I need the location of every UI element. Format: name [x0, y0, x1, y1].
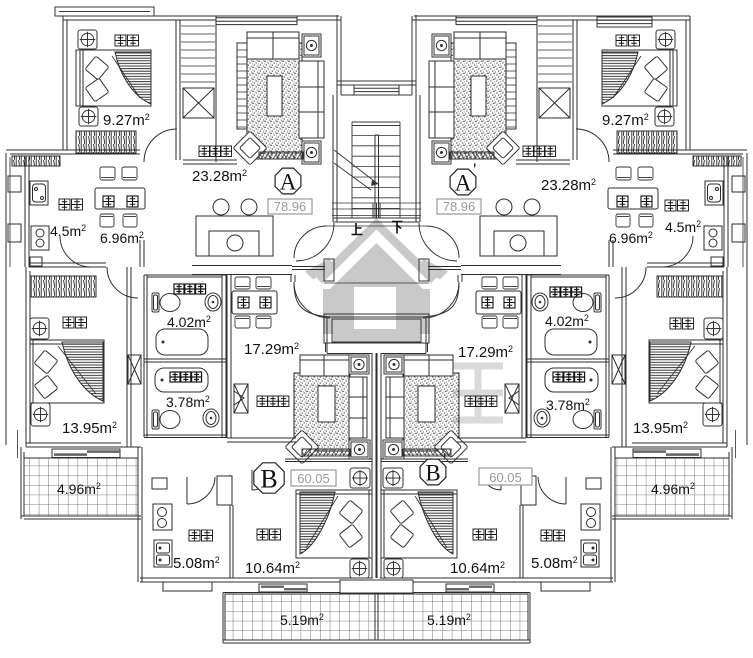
svg-text:60.05: 60.05: [297, 471, 330, 486]
svg-text:13.95m2: 13.95m2: [633, 420, 688, 437]
svg-text:5.19m2: 5.19m2: [427, 612, 471, 628]
svg-text:17.29m2: 17.29m2: [244, 341, 299, 358]
svg-text:10.64m2: 10.64m2: [450, 560, 505, 577]
svg-text:5.08m2: 5.08m2: [173, 555, 220, 572]
svg-text:3.78m2: 3.78m2: [166, 394, 210, 410]
svg-text:6.96m2: 6.96m2: [100, 230, 144, 246]
svg-text:B: B: [425, 460, 440, 485]
svg-text:B: B: [260, 464, 277, 493]
svg-text:3.78m2: 3.78m2: [546, 397, 590, 413]
svg-text:5.19m2: 5.19m2: [280, 612, 324, 628]
svg-text:4.02m2: 4.02m2: [167, 314, 211, 330]
svg-text:4.5m2: 4.5m2: [50, 223, 86, 239]
svg-text:23.28m2: 23.28m2: [541, 177, 596, 194]
svg-text:4.96m2: 4.96m2: [651, 481, 695, 497]
svg-text:10.64m2: 10.64m2: [245, 560, 300, 577]
svg-text:A: A: [455, 170, 472, 195]
svg-text:60.05: 60.05: [489, 470, 522, 485]
svg-text:4.96m2: 4.96m2: [57, 481, 101, 497]
svg-text:A: A: [280, 169, 297, 194]
svg-text:5.08m2: 5.08m2: [531, 555, 578, 572]
svg-text:78.96: 78.96: [274, 199, 307, 214]
svg-text:9.27m2: 9.27m2: [103, 112, 150, 129]
svg-text:6.96m2: 6.96m2: [609, 230, 653, 246]
svg-text:78.96: 78.96: [443, 199, 476, 214]
svg-text:23.28m2: 23.28m2: [192, 168, 247, 185]
svg-text:9.27m2: 9.27m2: [602, 112, 649, 129]
svg-text:4.5m2: 4.5m2: [665, 219, 701, 235]
svg-text:': ': [443, 450, 446, 470]
svg-text:4.02m2: 4.02m2: [545, 313, 589, 329]
svg-text:13.95m2: 13.95m2: [62, 420, 117, 437]
svg-text:': ': [473, 160, 476, 180]
svg-text:17.29m2: 17.29m2: [458, 344, 513, 361]
